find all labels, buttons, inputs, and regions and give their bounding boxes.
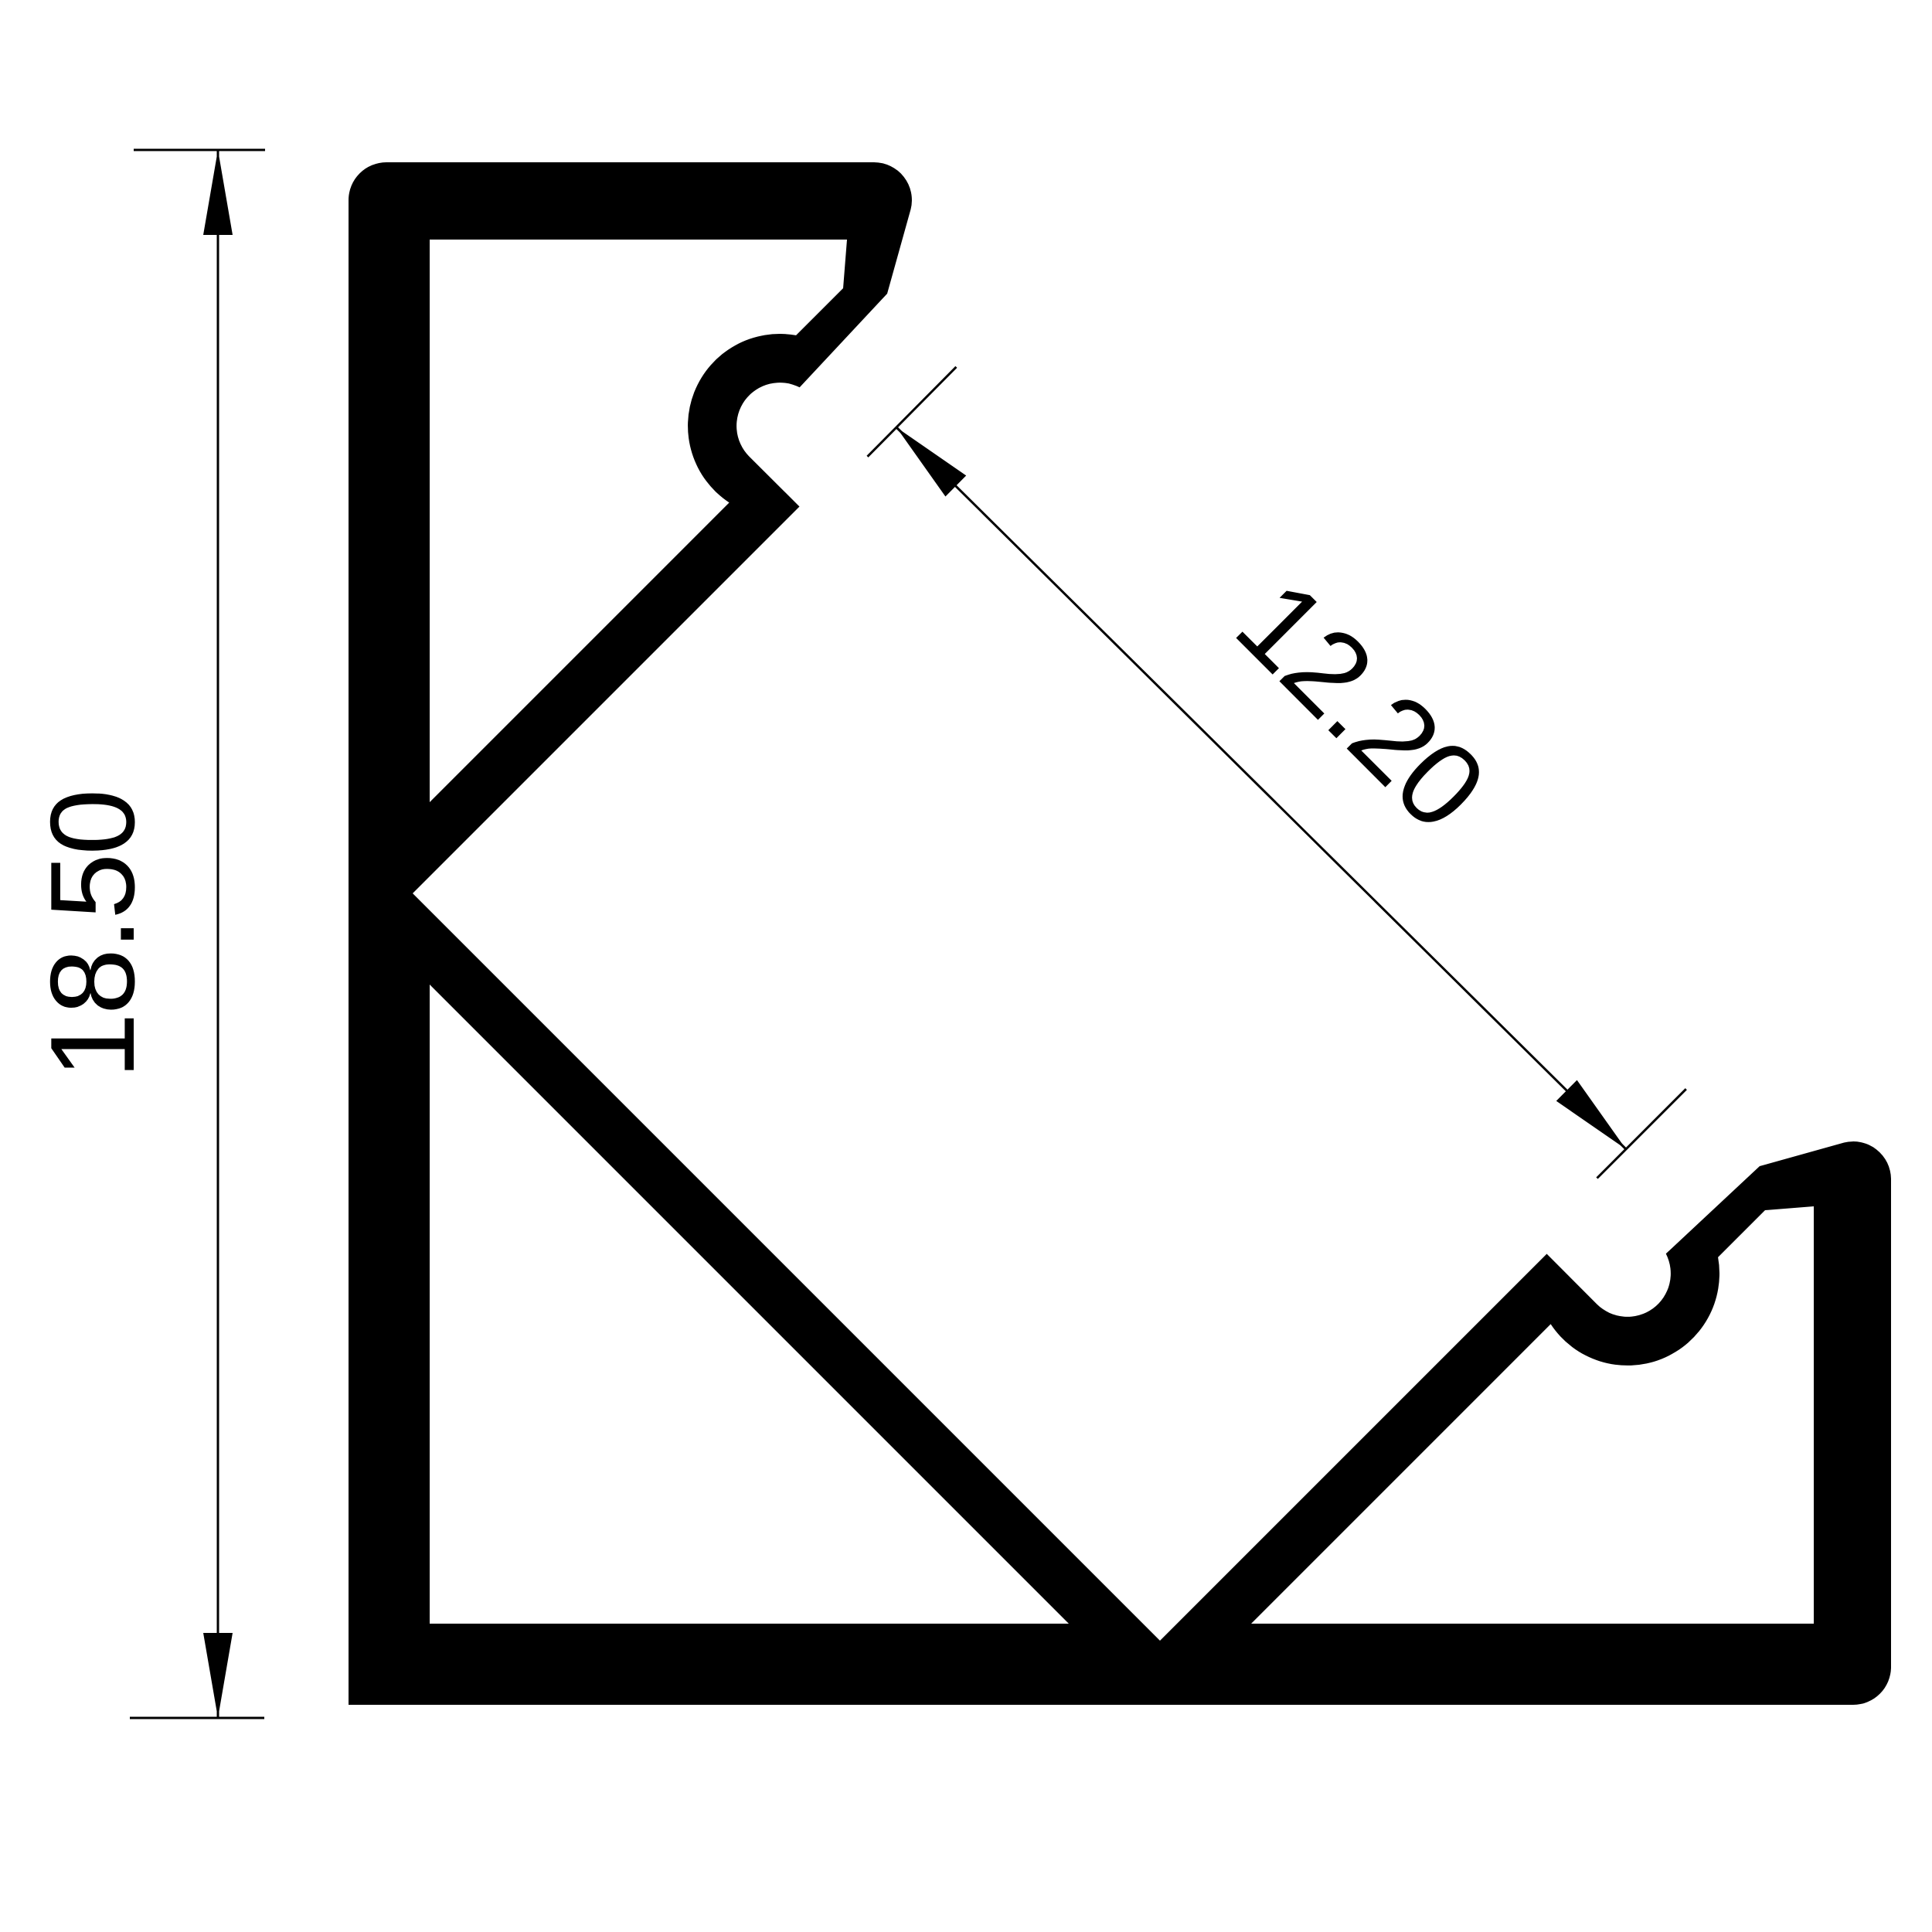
svg-text:12.20: 12.20: [1212, 555, 1510, 853]
svg-text:18.50: 18.50: [26, 791, 159, 1080]
